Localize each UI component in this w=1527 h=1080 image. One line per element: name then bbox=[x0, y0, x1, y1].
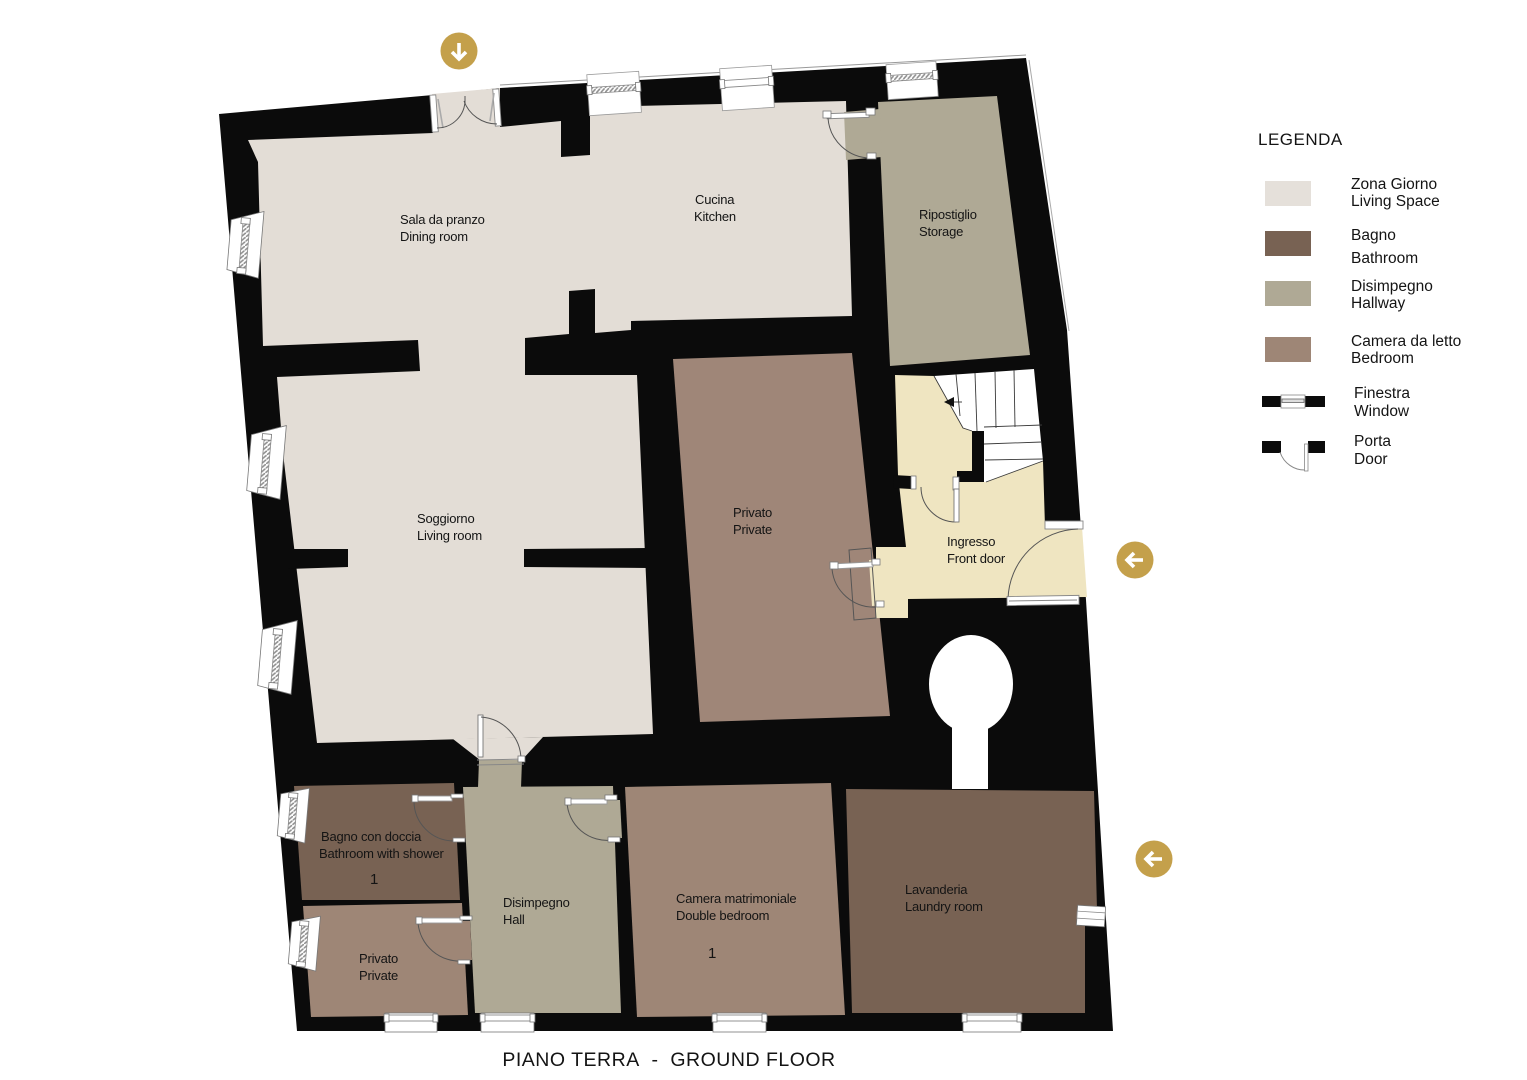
svg-text:Camera matrimoniale: Camera matrimoniale bbox=[676, 891, 796, 906]
svg-text:Bagno: Bagno bbox=[1351, 227, 1396, 244]
svg-text:Soggiorno: Soggiorno bbox=[417, 511, 474, 526]
svg-text:Lavanderia: Lavanderia bbox=[905, 882, 968, 897]
svg-text:Hall: Hall bbox=[503, 912, 525, 927]
svg-text:Front door: Front door bbox=[947, 551, 1006, 566]
svg-text:Living Space: Living Space bbox=[1351, 193, 1440, 210]
svg-text:Window: Window bbox=[1354, 403, 1410, 420]
svg-text:Dining room: Dining room bbox=[400, 229, 468, 244]
svg-text:Disimpegno: Disimpegno bbox=[503, 895, 570, 910]
svg-text:Porta: Porta bbox=[1354, 433, 1391, 450]
svg-text:1: 1 bbox=[708, 945, 716, 962]
svg-text:PIANO TERRA - GROUND FLOOR: PIANO TERRA - GROUND FLOOR bbox=[502, 1049, 835, 1071]
svg-text:Bathroom with shower: Bathroom with shower bbox=[319, 846, 444, 861]
svg-text:Living room: Living room bbox=[417, 528, 482, 543]
svg-text:Zona Giorno: Zona Giorno bbox=[1351, 176, 1437, 193]
svg-text:1: 1 bbox=[370, 871, 378, 888]
svg-text:Ripostiglio: Ripostiglio bbox=[919, 207, 977, 222]
svg-text:Privato: Privato bbox=[359, 951, 398, 966]
svg-text:Disimpegno: Disimpegno bbox=[1351, 278, 1433, 295]
svg-text:LEGENDA: LEGENDA bbox=[1258, 130, 1343, 149]
svg-text:Private: Private bbox=[359, 968, 398, 983]
svg-text:Sala da pranzo: Sala da pranzo bbox=[400, 212, 485, 227]
svg-text:Private: Private bbox=[733, 522, 772, 537]
svg-text:Storage: Storage bbox=[919, 224, 963, 239]
svg-text:Bedroom: Bedroom bbox=[1351, 350, 1414, 367]
svg-text:Bagno con doccia: Bagno con doccia bbox=[321, 829, 422, 844]
svg-text:Cucina: Cucina bbox=[695, 192, 735, 207]
svg-text:Finestra: Finestra bbox=[1354, 385, 1410, 402]
svg-text:Double bedroom: Double bedroom bbox=[676, 908, 769, 923]
svg-text:Hallway: Hallway bbox=[1351, 295, 1406, 312]
svg-text:Laundry room: Laundry room bbox=[905, 899, 983, 914]
svg-text:Kitchen: Kitchen bbox=[694, 209, 736, 224]
svg-text:Camera da letto: Camera da letto bbox=[1351, 333, 1461, 350]
svg-text:Privato: Privato bbox=[733, 505, 772, 520]
svg-text:Bathroom: Bathroom bbox=[1351, 250, 1418, 267]
svg-text:Door: Door bbox=[1354, 451, 1388, 468]
svg-text:Ingresso: Ingresso bbox=[947, 534, 995, 549]
